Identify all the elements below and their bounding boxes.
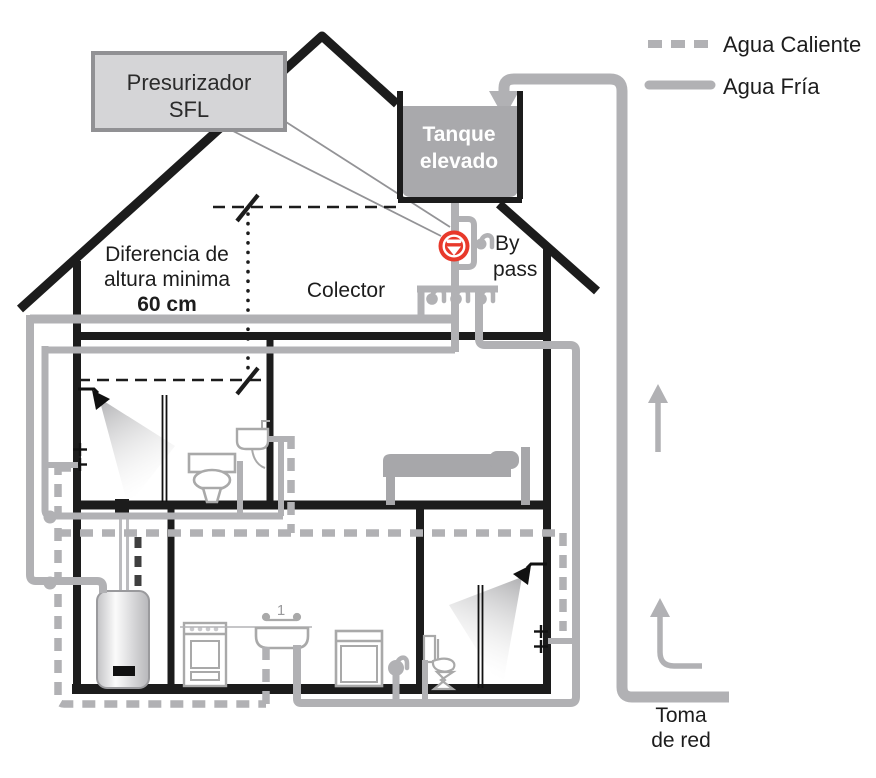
- washing-machine: [336, 631, 382, 686]
- pressurizer-label-line2: SFL: [169, 97, 209, 122]
- collector-label: Colector: [307, 279, 385, 302]
- shower-spray: [99, 398, 175, 506]
- kitchen-faucet-number: 1: [277, 602, 285, 619]
- elevated-tank: Tanque elevado: [398, 91, 522, 200]
- mains-riser-pipe: [504, 79, 729, 697]
- pressurizer-label-line1: Presurizador: [127, 70, 252, 95]
- height-note-line3: 60 cm: [137, 293, 197, 316]
- plumbing-diagram: Tanque elevado Presurizador SFL Agua Cal…: [0, 0, 876, 778]
- shower-upstairs: [73, 389, 175, 506]
- pressurizer-box: Presurizador SFL: [93, 53, 285, 130]
- flow-arrows: [648, 384, 702, 666]
- legend: Agua Caliente Agua Fría: [648, 32, 861, 99]
- bypass-label-line1: By: [495, 232, 520, 255]
- check-valve-icon: [439, 231, 470, 262]
- shower-downstairs: [449, 564, 548, 690]
- bypass-label-line2: pass: [493, 258, 537, 281]
- flow-arrow-icon: [650, 598, 702, 666]
- mains-intake-label-line1: Toma: [655, 704, 707, 727]
- flow-arrow-icon: [648, 384, 668, 452]
- heater-slot: [113, 666, 135, 676]
- sink-upstairs: [237, 421, 270, 468]
- diagram-canvas: Tanque elevado Presurizador SFL Agua Cal…: [0, 0, 876, 778]
- mains-intake-label-line2: de red: [651, 729, 711, 752]
- legend-hot-label: Agua Caliente: [723, 32, 861, 57]
- bed: [383, 447, 530, 505]
- stove: [184, 623, 226, 686]
- height-note-line1: Diferencia de: [105, 243, 229, 266]
- tank-label-line1: Tanque: [422, 123, 495, 146]
- toilet-downstairs: [424, 636, 454, 689]
- tank-label-line2: elevado: [420, 150, 498, 173]
- shower-spray: [449, 577, 522, 690]
- fixtures: [73, 389, 548, 690]
- height-note-line2: altura minima: [104, 268, 230, 291]
- legend-cold-label: Agua Fría: [723, 74, 820, 99]
- toilet-upstairs: [189, 454, 235, 502]
